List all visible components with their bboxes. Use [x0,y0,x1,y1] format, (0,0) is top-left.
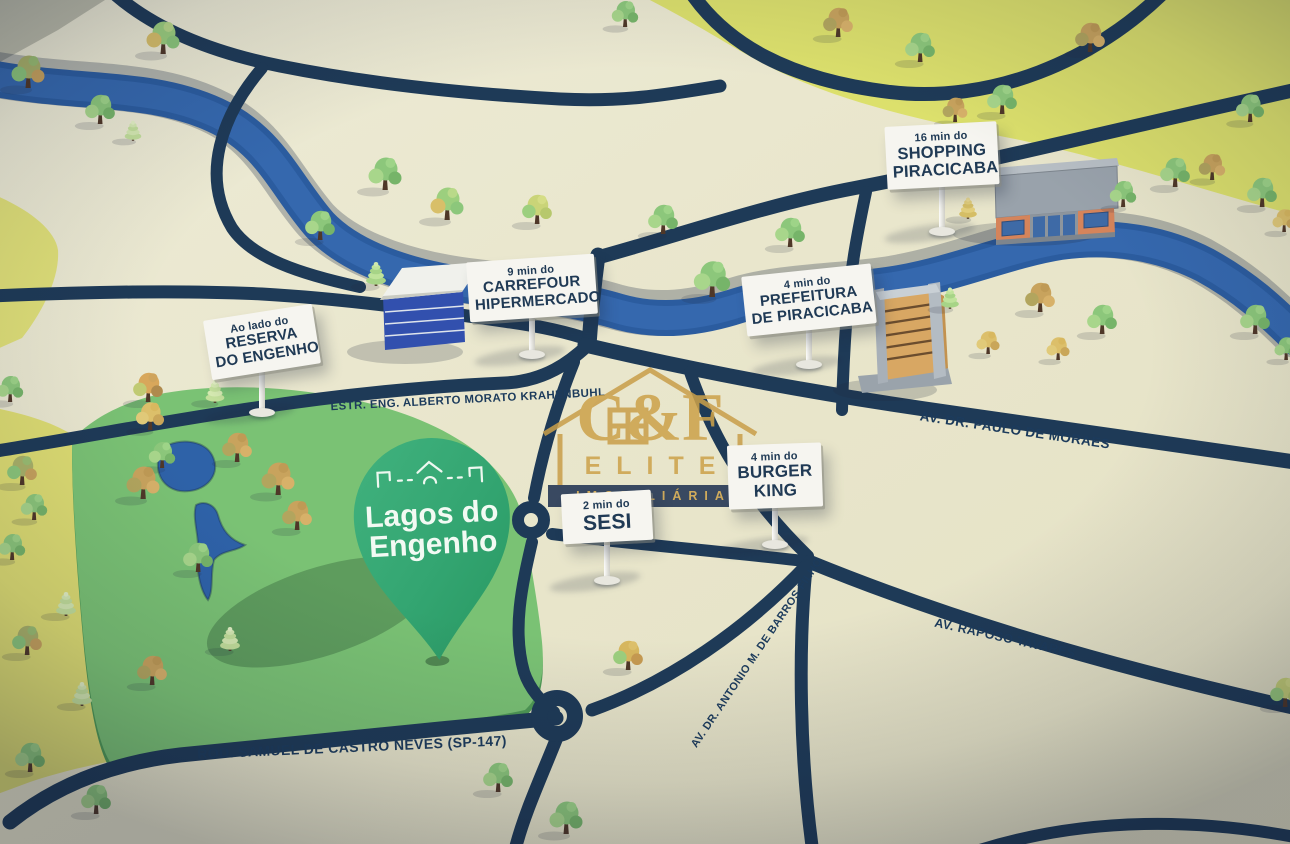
sign-card: 16 min do SHOPPING PIRACICABA [884,121,999,190]
sign-base [519,350,545,359]
sign-title: SESI [568,509,647,536]
sign-card: 9 min do CARREFOUR HIPERMERCADO [466,254,598,323]
sign-title: KING [734,480,817,502]
sign-base [796,360,822,369]
sign-title: PIRACICABA [892,159,993,182]
sign-post [772,508,778,544]
sign-card: 4 min do PREFEITURA DE PIRACICABA [741,263,877,336]
sign-card: 2 min do SESI [561,490,653,545]
sign-sesi: 2 min do SESI [562,492,652,542]
sign-post [259,372,265,412]
sign-title: BURGER [734,462,817,484]
sign-card: Ao lado do RESERVA DO ENGENHO [203,304,321,380]
sign-card: 4 min do BURGER KING [727,442,823,510]
sign-carrefour: 9 min do CARREFOUR HIPERMERCADO [468,258,596,318]
sign-post [806,330,812,364]
sign-prefeitura: 4 min do PREFEITURA DE PIRACICABA [744,270,874,330]
sign-reserva-do-engenho: Ao lado do RESERVA DO ENGENHO [207,312,317,372]
map-canvas: Lagos do Engenho C&F ELITE IMOBILIÁRIA A… [0,0,1290,844]
pin-label-line2: Engenho [368,525,498,565]
sign-post [939,187,945,231]
sign-post [604,542,610,580]
sign-shopping-piracicaba: 16 min do SHOPPING PIRACICABA [886,124,998,187]
sign-post [529,318,535,354]
sign-burger-king: 4 min do BURGER KING [728,444,822,508]
terrain-svg: Lagos do Engenho [0,0,1290,844]
sign-base [249,408,275,417]
